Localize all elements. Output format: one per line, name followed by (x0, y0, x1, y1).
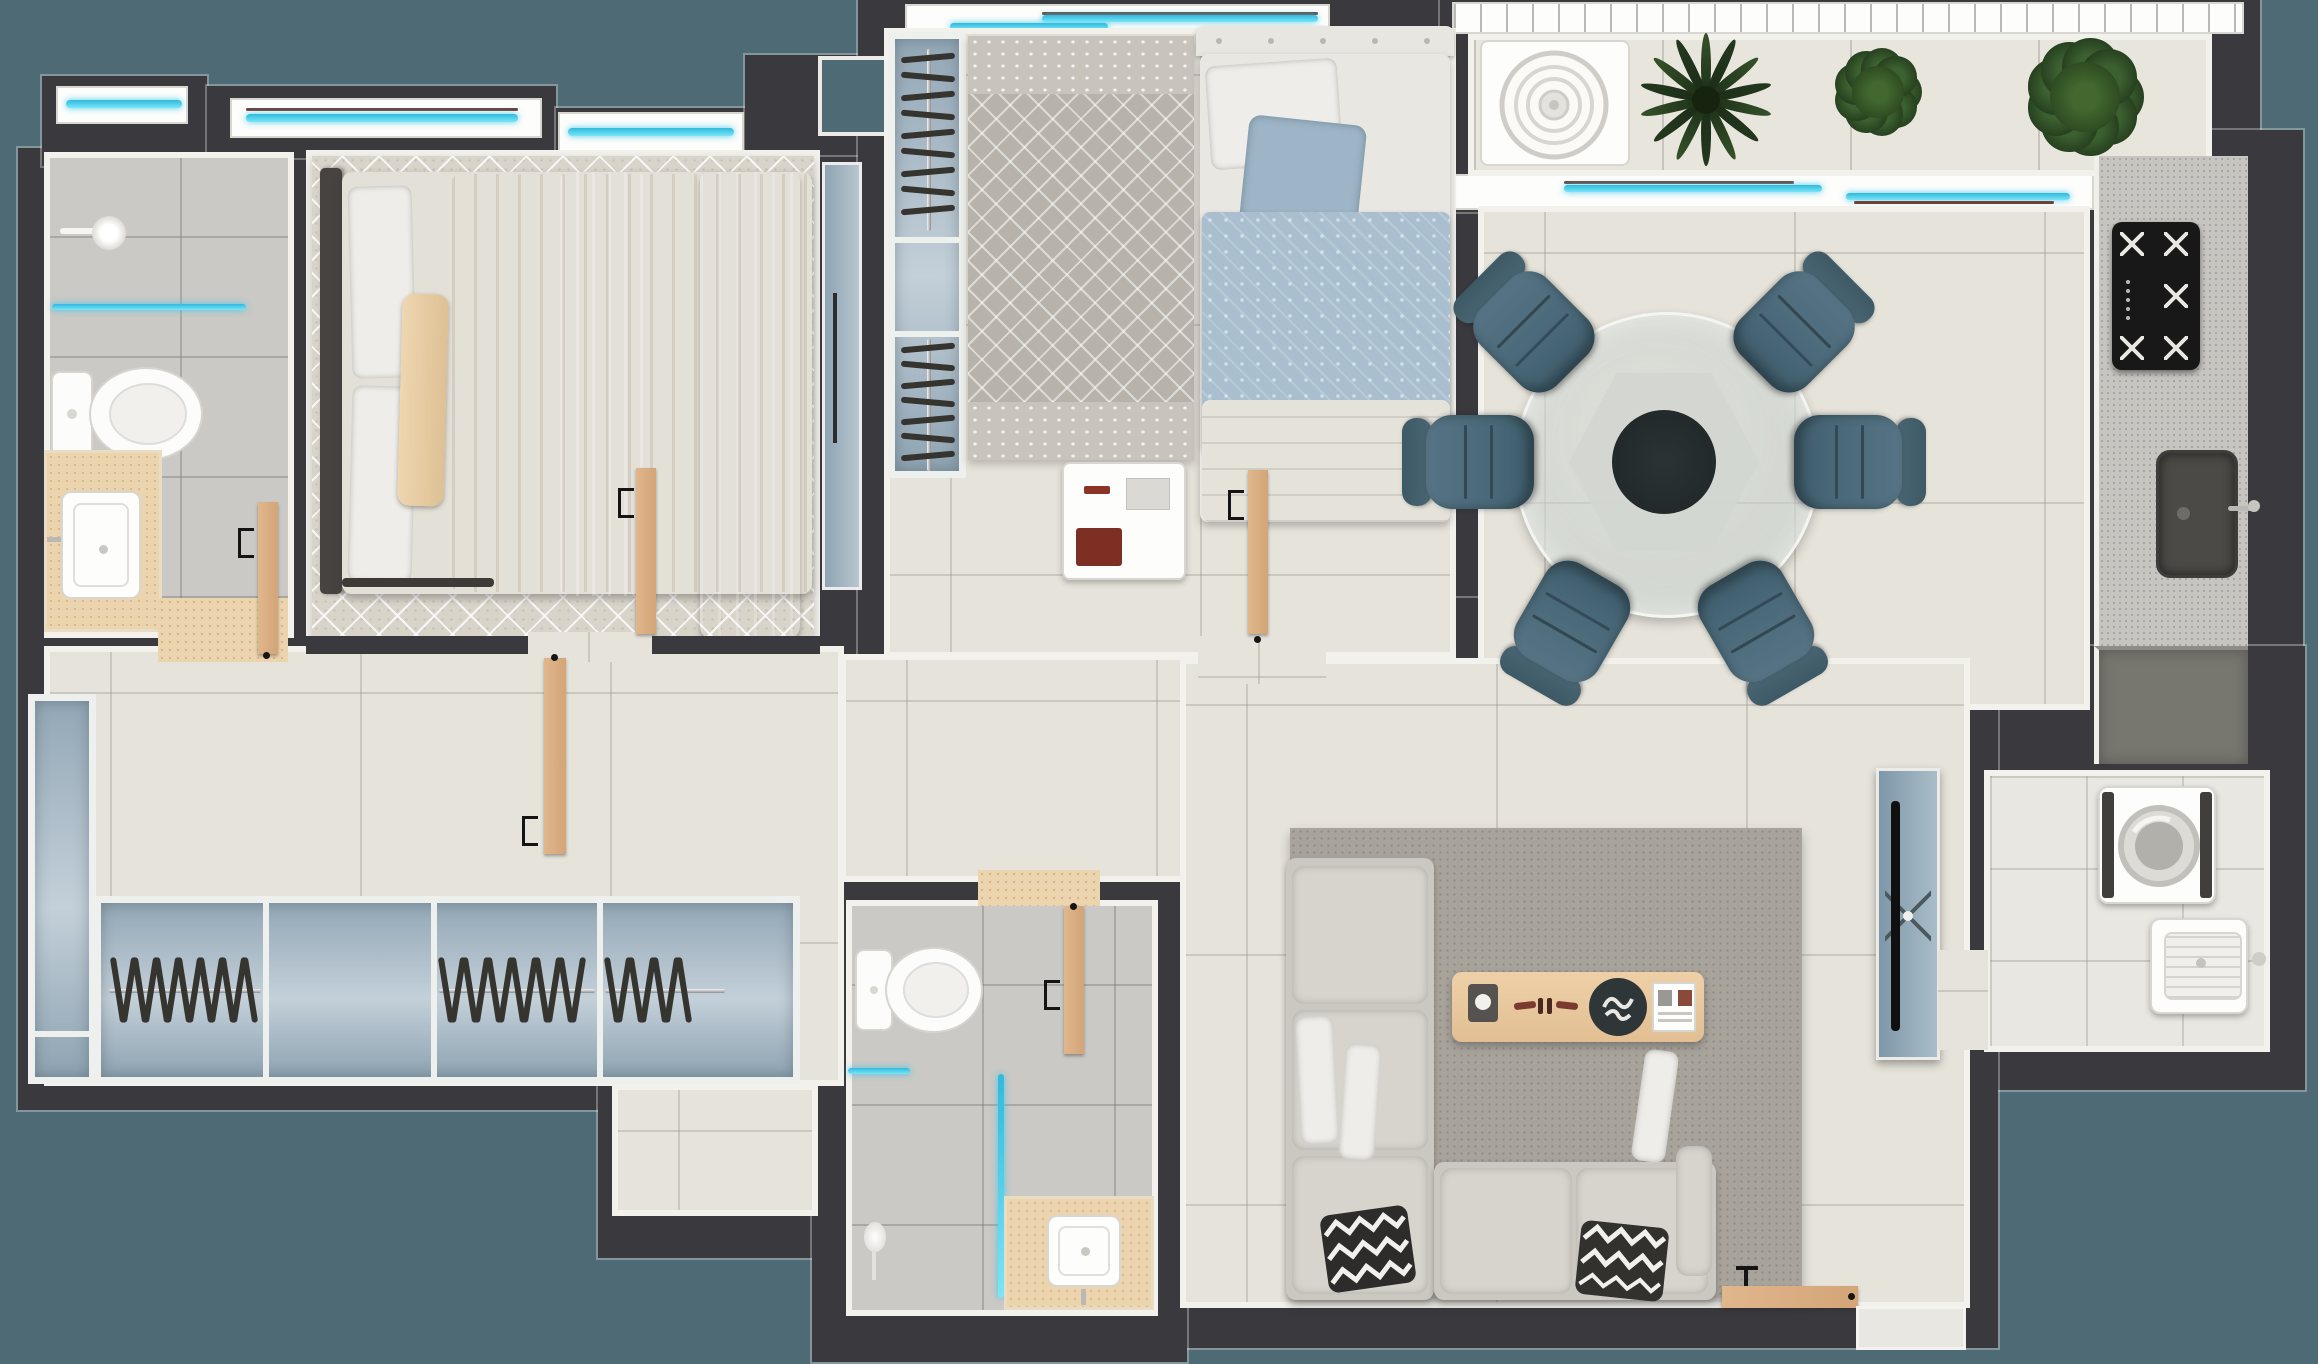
window-frame-bathroom1-left (56, 86, 188, 124)
bathroom1-door-handle (238, 528, 254, 558)
bedroom2-door-handle (1228, 490, 1244, 520)
headboard-buttons (1216, 38, 1222, 44)
master-closet-door-handle (618, 488, 634, 518)
book-lines (1658, 1012, 1692, 1015)
decor-plate (1586, 975, 1650, 1039)
master-lumbar-pillow (397, 293, 449, 506)
laundry-door-opening (1938, 950, 1988, 1050)
kitchen-faucet-base (2248, 500, 2260, 512)
vanity-counter-bathroom2 (1004, 1196, 1154, 1310)
closet-divider (263, 903, 269, 1077)
master-door-leaf (544, 658, 566, 854)
bed2-headboard (1196, 26, 1454, 56)
sink-drain (1081, 1247, 1090, 1256)
burner-icon (2120, 336, 2144, 360)
closet-divider (597, 903, 603, 1077)
closet-divider (895, 331, 959, 337)
window-frame-bathroom1 (230, 98, 542, 138)
hall-closet-run (94, 896, 800, 1084)
balcony-louver-roof (1452, 2, 2244, 34)
decor-open-book (1652, 982, 1696, 1032)
entry-door-leaf (1722, 1286, 1858, 1308)
desk-notebook (1126, 478, 1170, 510)
plant-bush-large (2026, 38, 2144, 156)
decor-frame (1468, 984, 1498, 1022)
bathroom2-door-threshold (978, 870, 1100, 906)
master-door-hinge (551, 654, 558, 661)
sofa-back-cushion (1676, 1146, 1712, 1276)
desk-red-book (1076, 528, 1122, 566)
plant-palm (1642, 36, 1770, 164)
bathroom1-door-leaf (258, 502, 278, 654)
kitchen-sink (2156, 450, 2238, 578)
window-frame-master (558, 112, 744, 152)
window-mullion (1564, 181, 1794, 184)
window-mullion (246, 108, 518, 111)
sink-drain (99, 545, 108, 554)
kitchen-base-cabinet (2094, 646, 2248, 764)
bathroom2-door-leaf (1064, 906, 1084, 1054)
decor-stick (1538, 998, 1543, 1014)
vanity-sink2 (1047, 1215, 1121, 1287)
dining-chair (1402, 415, 1534, 509)
cooktop (2112, 222, 2200, 370)
bedroom2-door-hinge (1254, 636, 1261, 643)
sliding-glass-pane1 (1564, 185, 1822, 192)
dining-table-center (1612, 410, 1716, 514)
laundry-faucet (2252, 952, 2266, 966)
closet-divider (895, 237, 959, 243)
light-shaft-notch (818, 56, 888, 136)
laundry-tank-sink (2150, 918, 2248, 1014)
master-closet-door-leaf (636, 468, 656, 634)
tv-stand-hub (1903, 911, 1913, 921)
entry-door-handle-stem (1744, 1266, 1748, 1286)
sink-drain (2177, 507, 2190, 520)
floor-passage (840, 654, 1186, 882)
master-bed-frame-edge (342, 578, 494, 587)
wall-master-south-a (306, 636, 528, 654)
floor-corridor (612, 1084, 818, 1216)
window-glass (568, 128, 734, 136)
burner-icon (2120, 232, 2144, 256)
sofa-cushion (1292, 866, 1428, 1004)
master-throw-blue-1 (560, 172, 644, 596)
bedroom2-desk (1062, 462, 1186, 580)
bathroom1-door-hinge (263, 652, 270, 659)
burner-icon (2164, 284, 2188, 308)
washing-machine (2098, 786, 2216, 904)
vanity-sink (61, 491, 141, 599)
entry-landing-step (1856, 1306, 1966, 1350)
cooktop-controls (2126, 280, 2130, 284)
master-door-handle (522, 816, 538, 846)
decor-frame-ball (1475, 994, 1491, 1010)
washer-side-band (2102, 792, 2114, 898)
sink-faucet2 (1081, 1289, 1086, 1305)
rug-band-top (968, 36, 1194, 94)
sliding-panel-door (822, 162, 862, 590)
book-image (1678, 990, 1692, 1006)
shower-glass-screen (52, 304, 246, 310)
window-glass (66, 100, 182, 108)
floor-plan-canvas (0, 0, 2318, 1364)
toilet-bathroom2 (854, 944, 984, 1036)
bedroom2-closet (888, 32, 966, 478)
zigzag-pillow (1317, 1202, 1420, 1296)
plant-bush (1834, 48, 1922, 136)
bedroom2-door-threshold (1198, 636, 1326, 684)
hall-closet-column (28, 694, 96, 1084)
rug-bedroom2 (968, 36, 1194, 460)
sink-faucet (47, 537, 61, 542)
rug-band-bottom (968, 402, 1194, 460)
decor-stick (1556, 1001, 1579, 1010)
coffee-table (1452, 972, 1704, 1042)
tank-drain (2196, 958, 2206, 968)
window-glass-pane2 (1042, 15, 1318, 22)
wall-master-south-b (652, 636, 820, 654)
window-mullion2 (1854, 201, 2054, 204)
closet-shelf-divider (35, 1031, 89, 1037)
book-image (1658, 990, 1672, 1006)
palm-center (1692, 86, 1720, 114)
vanity-counter-bathroom1 (44, 450, 162, 632)
ac-condenser-unit (1480, 40, 1630, 166)
entry-door-hinge (1848, 1293, 1855, 1300)
sliding-glass-pane2 (1846, 193, 2070, 200)
zigzag-pillow (1572, 1217, 1672, 1304)
toilet-bathroom1 (50, 364, 210, 464)
sliding-panel-handle (833, 293, 837, 443)
balcony-sliding-window-frame (1452, 174, 2094, 210)
hand-shower-hose (872, 1250, 876, 1280)
closet-divider (431, 903, 437, 1077)
shower2-glass-return (848, 1068, 910, 1074)
burner-icon (2164, 336, 2188, 360)
chair-seat (1794, 415, 1902, 509)
master-throw-blue-2 (700, 172, 800, 640)
washer-side-band (2200, 792, 2212, 898)
sofa-cushion (1440, 1168, 1572, 1294)
chair-seat (1426, 415, 1534, 509)
burner-icon (2164, 232, 2188, 256)
sofa-bolster-pillow (1295, 1015, 1340, 1145)
master-bed-headboard (320, 168, 342, 594)
dining-chair (1794, 415, 1926, 509)
hand-shower-head (864, 1222, 886, 1252)
tv-screen (1891, 801, 1900, 1031)
bathroom2-door-handle (1044, 980, 1060, 1010)
tv-sideboard (1876, 768, 1940, 1060)
shower-head (92, 216, 126, 250)
decor-stick (1547, 998, 1552, 1014)
window-glass (246, 114, 518, 122)
bathroom2-door-hinge (1070, 903, 1077, 910)
desk-pencil (1084, 486, 1110, 494)
bedroom2-door-leaf (1248, 470, 1268, 634)
ac-fan-grille (1482, 42, 1632, 168)
decor-stick (1514, 1001, 1537, 1010)
